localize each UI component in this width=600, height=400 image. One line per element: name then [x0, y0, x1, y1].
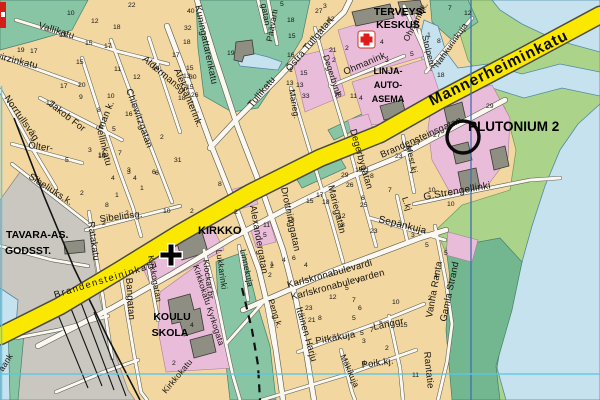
house-number: 13	[296, 82, 304, 89]
house-number: 23	[395, 153, 403, 160]
house-number: 7	[357, 278, 361, 285]
house-number: 18	[437, 72, 445, 79]
house-number: 5	[280, 1, 284, 8]
poi-tavara-line2: GODSST.	[5, 245, 51, 257]
house-number: 8	[218, 181, 222, 188]
house-number: 15	[306, 198, 314, 205]
house-number: 33	[302, 93, 310, 100]
house-number: 2	[80, 190, 84, 197]
house-number: 12	[91, 18, 99, 25]
house-number: 1	[115, 192, 119, 199]
house-number: 12	[46, 100, 54, 107]
house-number: 13	[287, 217, 295, 224]
house-number: 27	[413, 140, 421, 147]
house-number: 10	[392, 299, 400, 306]
house-number: 27	[433, 132, 441, 139]
house-number: 23	[305, 305, 313, 312]
house-number: 7	[370, 327, 374, 334]
house-number: 4	[282, 257, 286, 264]
house-number: 70	[334, 92, 342, 99]
house-number: 5	[263, 232, 267, 239]
house-number: 7	[118, 150, 122, 157]
house-number: 29	[486, 103, 494, 110]
house-number: 12	[464, 10, 472, 17]
house-number: 4	[190, 322, 194, 329]
house-number: 3	[411, 232, 415, 239]
poi-tavara-line1: TAVARA-AS.	[6, 229, 68, 241]
house-number: 2	[234, 209, 238, 216]
house-number: 12	[338, 213, 346, 220]
house-number: 22	[128, 2, 136, 9]
house-number: 5	[65, 157, 69, 164]
house-number: 2	[160, 134, 164, 141]
poi-koulu-line2: SKOLA	[152, 327, 189, 339]
house-number: 31	[174, 157, 182, 164]
house-number: 17	[104, 43, 112, 50]
house-number: 11	[350, 93, 357, 100]
house-number: 32	[184, 25, 192, 32]
house-number: 17	[60, 83, 68, 90]
poi-linja-line2: AUTO-	[374, 80, 402, 90]
house-number: 7	[388, 187, 392, 194]
house-number: 5	[112, 126, 116, 133]
hospital-cross-icon	[358, 31, 375, 48]
house-number: 25	[404, 146, 412, 153]
house-number: 16	[125, 111, 133, 118]
house-number: 12	[133, 74, 141, 81]
house-number: 21	[362, 167, 370, 174]
house-number: 2	[190, 208, 194, 215]
house-number: 5	[352, 315, 356, 322]
house-number: 1	[289, 67, 293, 74]
house-number: 12	[329, 294, 337, 301]
house-number: 3	[127, 167, 131, 174]
plutonium-marker-label[interactable]: PLUTONIUM 2	[468, 119, 559, 134]
house-number: 11	[412, 372, 419, 379]
house-number: 13	[59, 32, 67, 39]
house-number: 2	[332, 57, 336, 64]
house-number: 10	[447, 201, 455, 208]
house-number: 8	[97, 107, 101, 114]
house-number: 11	[263, 222, 270, 229]
house-number: 15	[400, 322, 408, 329]
poi-terveyskeskus-line2: KESKUS	[376, 19, 420, 31]
house-number: 4	[111, 175, 115, 182]
house-number: 15	[300, 70, 308, 77]
house-number: 7	[352, 297, 356, 304]
house-number: 2	[385, 345, 389, 352]
map-canvas[interactable]: Vallikatu wirzinkatu Kuningattarenkatu A…	[0, 0, 600, 400]
house-number: 2	[345, 45, 349, 52]
house-number: 10	[163, 208, 171, 215]
house-number: 3	[385, 57, 389, 64]
house-number: 18	[113, 24, 121, 31]
house-number: 15	[288, 33, 296, 40]
house-number: 23	[370, 228, 378, 235]
house-number: 2	[102, 220, 106, 227]
house-number: 26	[191, 92, 199, 99]
house-number: 2	[428, 295, 432, 302]
house-number: 4	[359, 95, 363, 102]
house-number: 4	[304, 262, 308, 269]
house-number: 5	[444, 250, 448, 257]
house-number: 8	[370, 173, 374, 180]
house-number: 2	[172, 360, 176, 367]
house-number: 5	[425, 242, 429, 249]
house-number: 12	[327, 16, 335, 23]
house-number: 3	[323, 3, 327, 10]
house-number: 29	[341, 172, 349, 179]
house-number: 5	[345, 285, 349, 292]
house-number: 26	[346, 182, 354, 189]
house-number: 40	[187, 8, 195, 15]
house-number: 5	[410, 51, 414, 58]
poi-linja-line3: ASEMA	[372, 94, 405, 104]
house-number: 27	[315, 8, 323, 15]
house-number: 16	[287, 52, 295, 59]
house-number: 19	[227, 50, 235, 57]
house-number: 10	[67, 10, 75, 17]
house-number: 4	[362, 360, 366, 367]
house-number: 15	[186, 84, 194, 91]
house-number: 2	[270, 263, 274, 270]
house-number: 2	[125, 210, 129, 217]
house-number: 17	[172, 52, 180, 59]
house-number: 10	[428, 187, 436, 194]
house-number: 14	[152, 65, 160, 72]
house-number: 6	[361, 195, 365, 202]
house-number: 2	[268, 272, 272, 279]
house-number: 18	[183, 39, 191, 46]
house-number: 4	[380, 39, 384, 46]
house-number: 19	[17, 47, 25, 54]
house-number: 13	[286, 80, 294, 87]
house-number: 8	[437, 38, 441, 45]
map-edge-symbol	[0, 2, 6, 28]
poi-koulu-line1: KOULU	[153, 311, 190, 323]
house-number: 6	[358, 305, 362, 312]
house-number: 8	[105, 202, 109, 209]
house-number: 8	[341, 222, 345, 229]
house-number: 7	[448, 5, 452, 12]
house-number: 3	[362, 338, 366, 345]
poi-linja-line1: LINJA-	[374, 66, 403, 76]
house-number: 8	[318, 315, 322, 322]
house-number: 15	[186, 65, 194, 72]
house-number: 21	[308, 317, 316, 324]
house-number: 1	[427, 32, 431, 39]
poi-terveyskeskus-line1: TERVEYS-	[374, 6, 427, 18]
house-number: 6	[292, 255, 296, 262]
house-number: 17	[316, 192, 324, 199]
house-number: 10	[98, 153, 106, 160]
poi-kirkko: KIRKKO	[198, 225, 242, 237]
house-number: 20	[78, 82, 86, 89]
house-number: 1	[140, 185, 144, 192]
house-number: 6	[155, 170, 159, 177]
house-number: 11	[114, 66, 121, 73]
house-number: 15	[85, 40, 93, 47]
house-number: 18	[287, 17, 295, 24]
house-number: 3	[88, 147, 92, 154]
house-number: 18	[178, 95, 186, 102]
house-number: 18	[322, 199, 330, 206]
house-number: 4	[434, 273, 438, 280]
house-number: 25	[360, 202, 368, 209]
house-number: 15	[76, 59, 84, 66]
house-number: 17	[30, 48, 38, 55]
house-number: 30	[189, 74, 197, 81]
house-number: 4	[133, 175, 137, 182]
house-number: 9	[79, 94, 83, 101]
house-number: 10	[107, 93, 115, 100]
house-number: 5	[360, 330, 364, 337]
house-number: 21	[329, 47, 337, 54]
